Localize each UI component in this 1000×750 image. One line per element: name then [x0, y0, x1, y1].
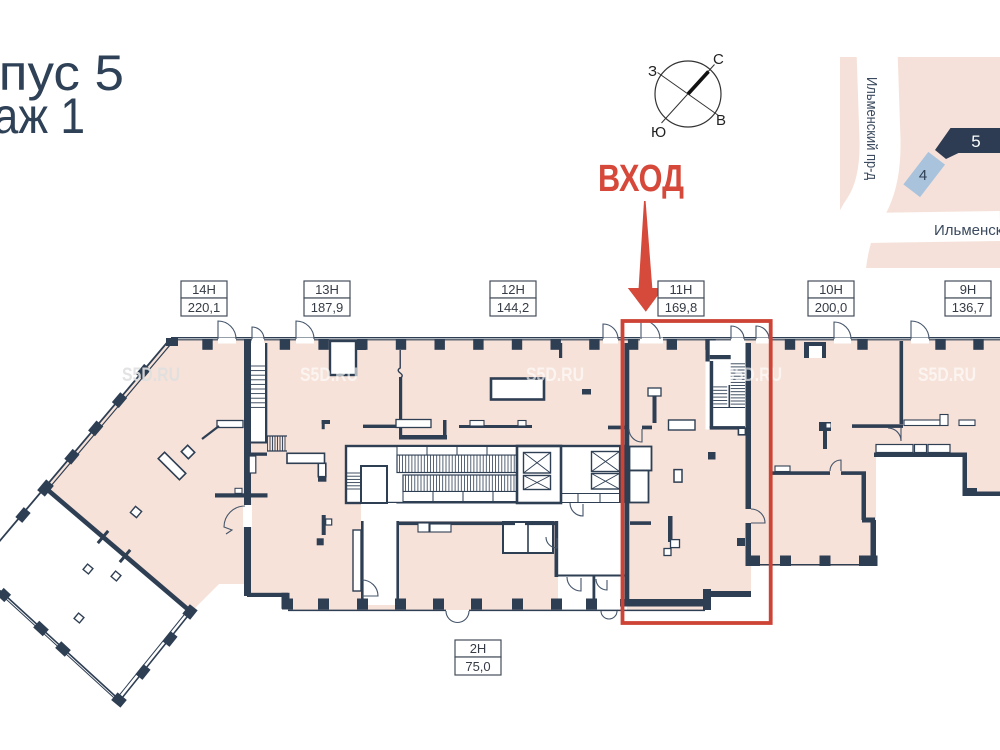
- svg-text:136,7: 136,7: [952, 300, 985, 315]
- svg-text:4: 4: [919, 167, 927, 184]
- svg-text:Ильменский: Ильменский: [934, 222, 1000, 239]
- svg-text:200,0: 200,0: [815, 300, 848, 315]
- svg-text:11Н: 11Н: [670, 282, 693, 297]
- svg-text:13Н: 13Н: [315, 282, 339, 297]
- svg-text:75,0: 75,0: [465, 659, 490, 674]
- svg-text:5: 5: [971, 132, 980, 151]
- svg-text:С: С: [713, 51, 724, 68]
- svg-text:S5D.RU: S5D.RU: [122, 365, 180, 386]
- svg-text:14Н: 14Н: [192, 282, 216, 297]
- svg-text:2Н: 2Н: [470, 641, 487, 656]
- svg-text:220,1: 220,1: [188, 300, 221, 315]
- svg-text:Этаж 1: Этаж 1: [0, 88, 85, 144]
- svg-text:9Н: 9Н: [960, 282, 977, 297]
- svg-text:S5D.RU: S5D.RU: [526, 365, 584, 386]
- svg-text:169,8: 169,8: [665, 300, 698, 315]
- svg-text:S5D.RU: S5D.RU: [300, 365, 358, 386]
- svg-text:10Н: 10Н: [819, 282, 843, 297]
- svg-text:В: В: [716, 112, 726, 129]
- svg-text:187,9: 187,9: [311, 300, 344, 315]
- svg-text:Ю: Ю: [651, 124, 666, 141]
- svg-text:S5D.RU: S5D.RU: [724, 365, 782, 386]
- svg-text:12Н: 12Н: [501, 282, 525, 297]
- svg-text:144,2: 144,2: [497, 300, 530, 315]
- svg-text:З: З: [648, 63, 657, 80]
- svg-text:Ильменский пр-д: Ильменский пр-д: [863, 77, 879, 180]
- svg-text:ВХОД: ВХОД: [598, 158, 684, 200]
- svg-text:S5D.RU: S5D.RU: [918, 365, 976, 386]
